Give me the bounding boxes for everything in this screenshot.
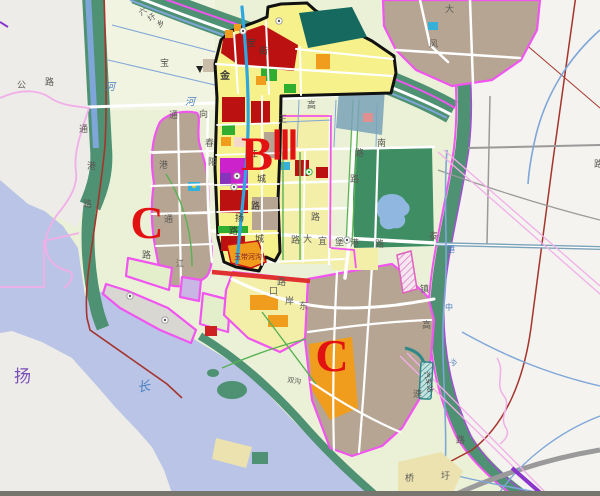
map-label: 扬 (235, 212, 244, 223)
map-label: 宝 (247, 37, 256, 48)
map-label: 宝 (160, 57, 169, 68)
map-label: 高 (307, 99, 316, 110)
red-parcel (251, 101, 270, 124)
map-label: 路 (291, 234, 300, 245)
zone-letter-C: C (315, 330, 348, 381)
map-label: 宜 (318, 235, 327, 246)
map-label: 路 (375, 238, 384, 249)
poi-marker-dot (278, 20, 280, 22)
orange-parcel (268, 315, 288, 327)
red-parcel (222, 97, 245, 122)
map-label: 圩 (441, 470, 450, 481)
map-label: 路 (277, 276, 286, 287)
map-label: 风 (429, 39, 438, 49)
map-label: 港 (447, 244, 455, 254)
map-label: 港 (350, 237, 359, 248)
salmon-parcel (363, 113, 373, 122)
map-label: 路 (350, 173, 359, 184)
orange-parcel (221, 137, 231, 146)
poi-marker-dot (308, 171, 310, 173)
map-label: 港 (87, 160, 96, 171)
poi-marker-dot (129, 295, 131, 297)
green-parcel (222, 125, 235, 135)
shore-purple-zone (180, 277, 201, 301)
map-label: 向 (199, 108, 208, 119)
zone-letter-C: C (130, 197, 163, 248)
poi-marker-dot (346, 239, 348, 241)
orange-parcel (256, 76, 266, 85)
map-label: 路 (142, 249, 151, 260)
zone-letter-Ⅲ: Ⅲ (271, 123, 299, 168)
map-label: 东 (299, 300, 308, 311)
map-label: 街 (259, 45, 268, 56)
map-label: 高 (422, 319, 431, 330)
map-label: 港 (159, 159, 168, 170)
map-label: 路 (594, 158, 600, 169)
planning-map-svg: 公路六圩乡河宝河通港路通春阳港通路江金向宝街高王江城路扬路城玉带河沟南路路路路大… (0, 0, 600, 496)
map-label: 阳 (208, 157, 217, 167)
map-label: 通 (164, 214, 173, 224)
map-label: 中 (445, 302, 453, 312)
map-label: 路 (83, 198, 92, 209)
poi-marker-dot (164, 319, 166, 321)
map-canvas[interactable]: 公路六圩乡河宝河通港路通春阳港通路江金向宝街高王江城路扬路城玉带河沟南路路路路大… (0, 0, 600, 496)
south-green-patch (252, 452, 268, 464)
map-label: 堡 (335, 236, 344, 247)
map-label: 通 (79, 124, 88, 134)
map-label: 金 (219, 69, 231, 82)
map-label: 玉带河沟 (234, 252, 262, 261)
zone-letter-B: B (241, 128, 273, 181)
river-island (217, 381, 247, 399)
poi-marker-dot (242, 30, 244, 32)
map-label: 岸 (285, 296, 294, 306)
poi-marker-dot (236, 175, 238, 177)
map-label: 城 (255, 234, 264, 244)
map-label: 路 (229, 225, 238, 236)
map-label: 路 (45, 76, 54, 87)
orange-parcel (225, 30, 233, 38)
map-label: 南 (377, 137, 386, 148)
map-label: 通 (169, 110, 178, 120)
map-label: 江 (176, 259, 184, 268)
red-parcel-shore (205, 326, 217, 336)
map-label: 桥 (405, 472, 414, 483)
bottom-edge-bar (0, 491, 600, 496)
map-label: 春 (205, 137, 214, 148)
red-parcel (316, 167, 328, 178)
map-label: 路 (311, 211, 320, 222)
map-label: 路 (456, 434, 465, 445)
water-facility-block (428, 22, 438, 30)
map-label: 扬 (14, 367, 31, 386)
green-parcel (284, 84, 296, 93)
map-label: 口 (269, 286, 278, 296)
river-islet (207, 369, 219, 377)
map-label: 泰 (429, 230, 438, 241)
map-label: 大 (445, 3, 454, 14)
map-label: 公 (17, 80, 26, 90)
map-label: 大 (303, 233, 312, 244)
orange-parcel (316, 54, 330, 69)
map-label: 路 (355, 147, 364, 158)
map-label: 速 (413, 389, 422, 399)
poi-marker-dot (233, 186, 235, 188)
map-label: 路 (251, 200, 260, 211)
map-label: 镇 (420, 283, 429, 294)
